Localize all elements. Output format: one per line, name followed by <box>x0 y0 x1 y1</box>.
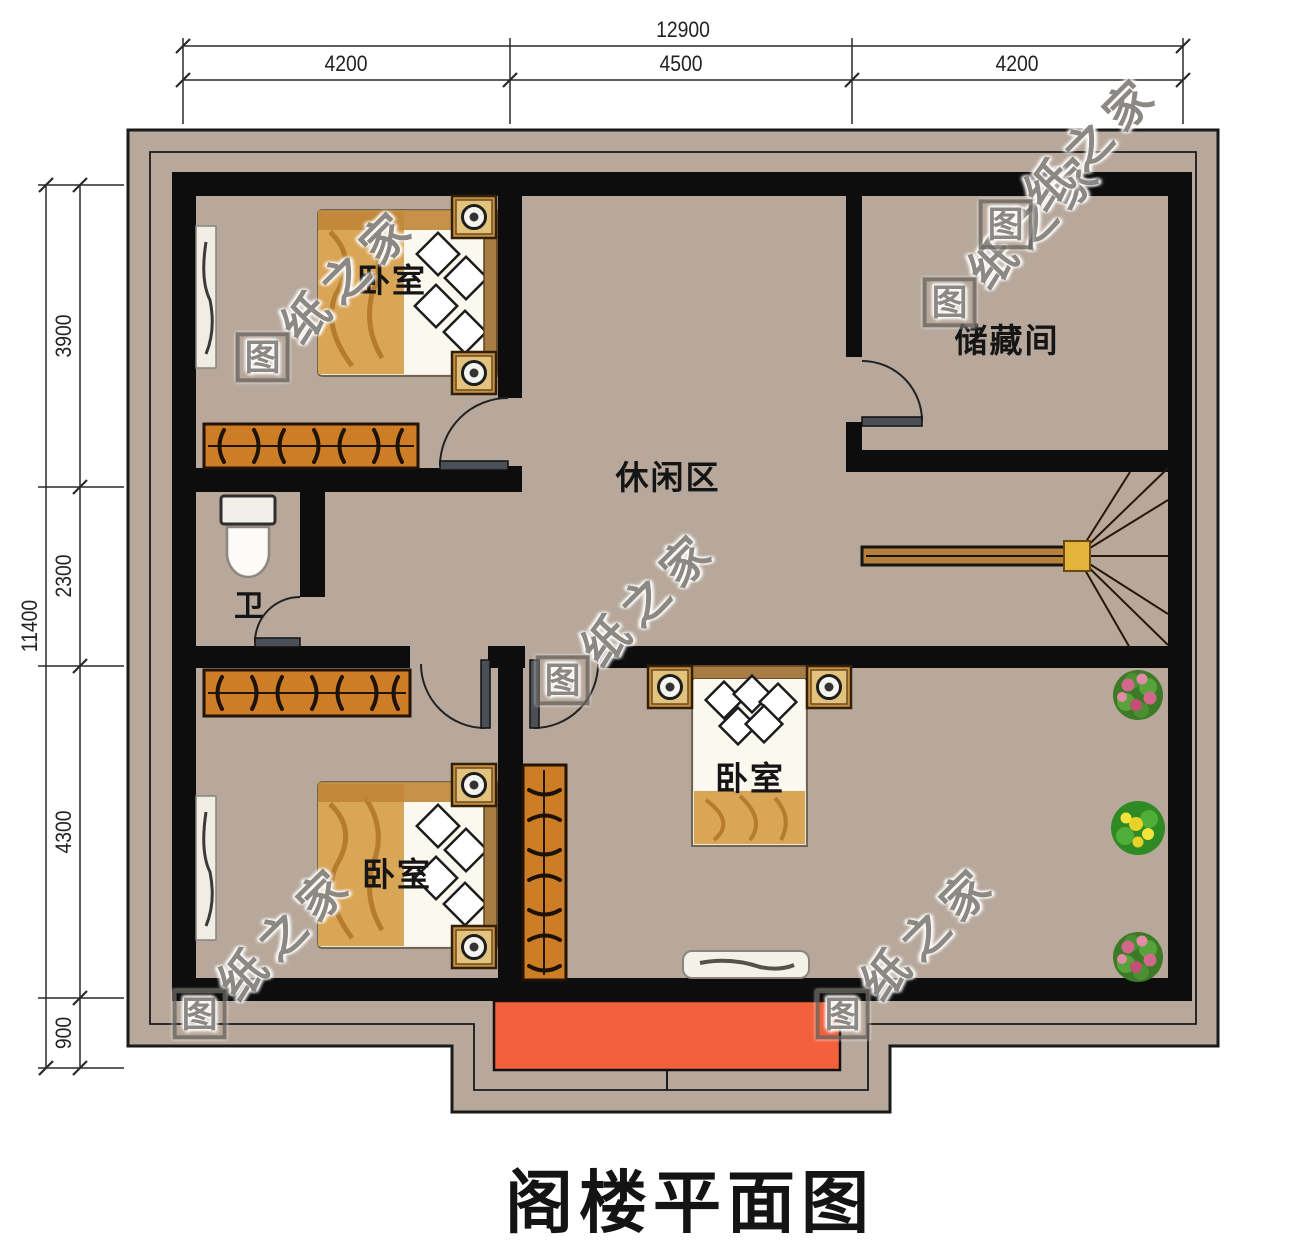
wall-storage-left-upper <box>846 172 862 357</box>
door-leaf-bedroom-tl <box>440 461 508 470</box>
wall-mid-right <box>600 646 1168 668</box>
watermark-logo: 图 <box>979 199 1033 249</box>
wall-bedroomTL-right-upper <box>498 196 522 398</box>
dim-left-total: 11400 <box>17 600 43 652</box>
wall-mid-stub <box>488 646 525 668</box>
wall-perimeter-bottom <box>172 978 1192 1001</box>
toilet <box>221 496 275 577</box>
wall-storage-bottom <box>846 450 1168 472</box>
plant-yellow <box>1111 801 1165 855</box>
stair-newel-post <box>1064 541 1090 571</box>
wall-bedrooms-divider <box>498 668 523 980</box>
watermark-logo: 图 <box>236 332 290 382</box>
dim-left-seg-4: 900 <box>51 1017 77 1049</box>
dim-top-seg-3: 4200 <box>995 51 1038 77</box>
wall-storage-left-lower <box>846 422 862 450</box>
wall-perimeter-left <box>172 172 196 1001</box>
wall-bathroom-right <box>300 492 325 597</box>
label-bathroom: 卫 <box>234 581 264 625</box>
dim-top-seg-1: 4200 <box>324 51 367 77</box>
dim-top-seg-2: 4500 <box>659 51 702 77</box>
watermark-logo: 图 <box>173 989 227 1039</box>
dim-left-seg-2: 2300 <box>51 554 77 597</box>
dim-left-seg-3: 4300 <box>51 810 77 853</box>
wall-bedroomTL-bottom <box>172 468 522 492</box>
wall-perimeter-right <box>1168 172 1192 1001</box>
label-bedroom-bottom-right: 卧室 <box>715 752 785 800</box>
label-leisure: 休闲区 <box>616 451 721 499</box>
floor-plan-page: 卧室 储藏间 休闲区 卫 卧室 卧室 12900 4200 4500 4200 … <box>0 0 1300 1254</box>
plan-title: 阁楼平面图 <box>505 1148 875 1247</box>
watermark-logo: 图 <box>536 655 590 705</box>
dim-top-total: 12900 <box>656 17 710 43</box>
door-leaf-bathroom <box>255 638 300 647</box>
balcony-terrace <box>494 1001 840 1070</box>
door-leaf-storage <box>862 417 922 426</box>
wall-mid-left <box>172 646 410 668</box>
dim-left-seg-1: 3900 <box>51 314 77 357</box>
watermark-logo: 图 <box>816 989 870 1039</box>
label-bedroom-bottom-left: 卧室 <box>362 848 432 896</box>
door-leaf-bedroom-bl <box>481 660 490 728</box>
watermark-logo: 图 <box>923 277 977 327</box>
